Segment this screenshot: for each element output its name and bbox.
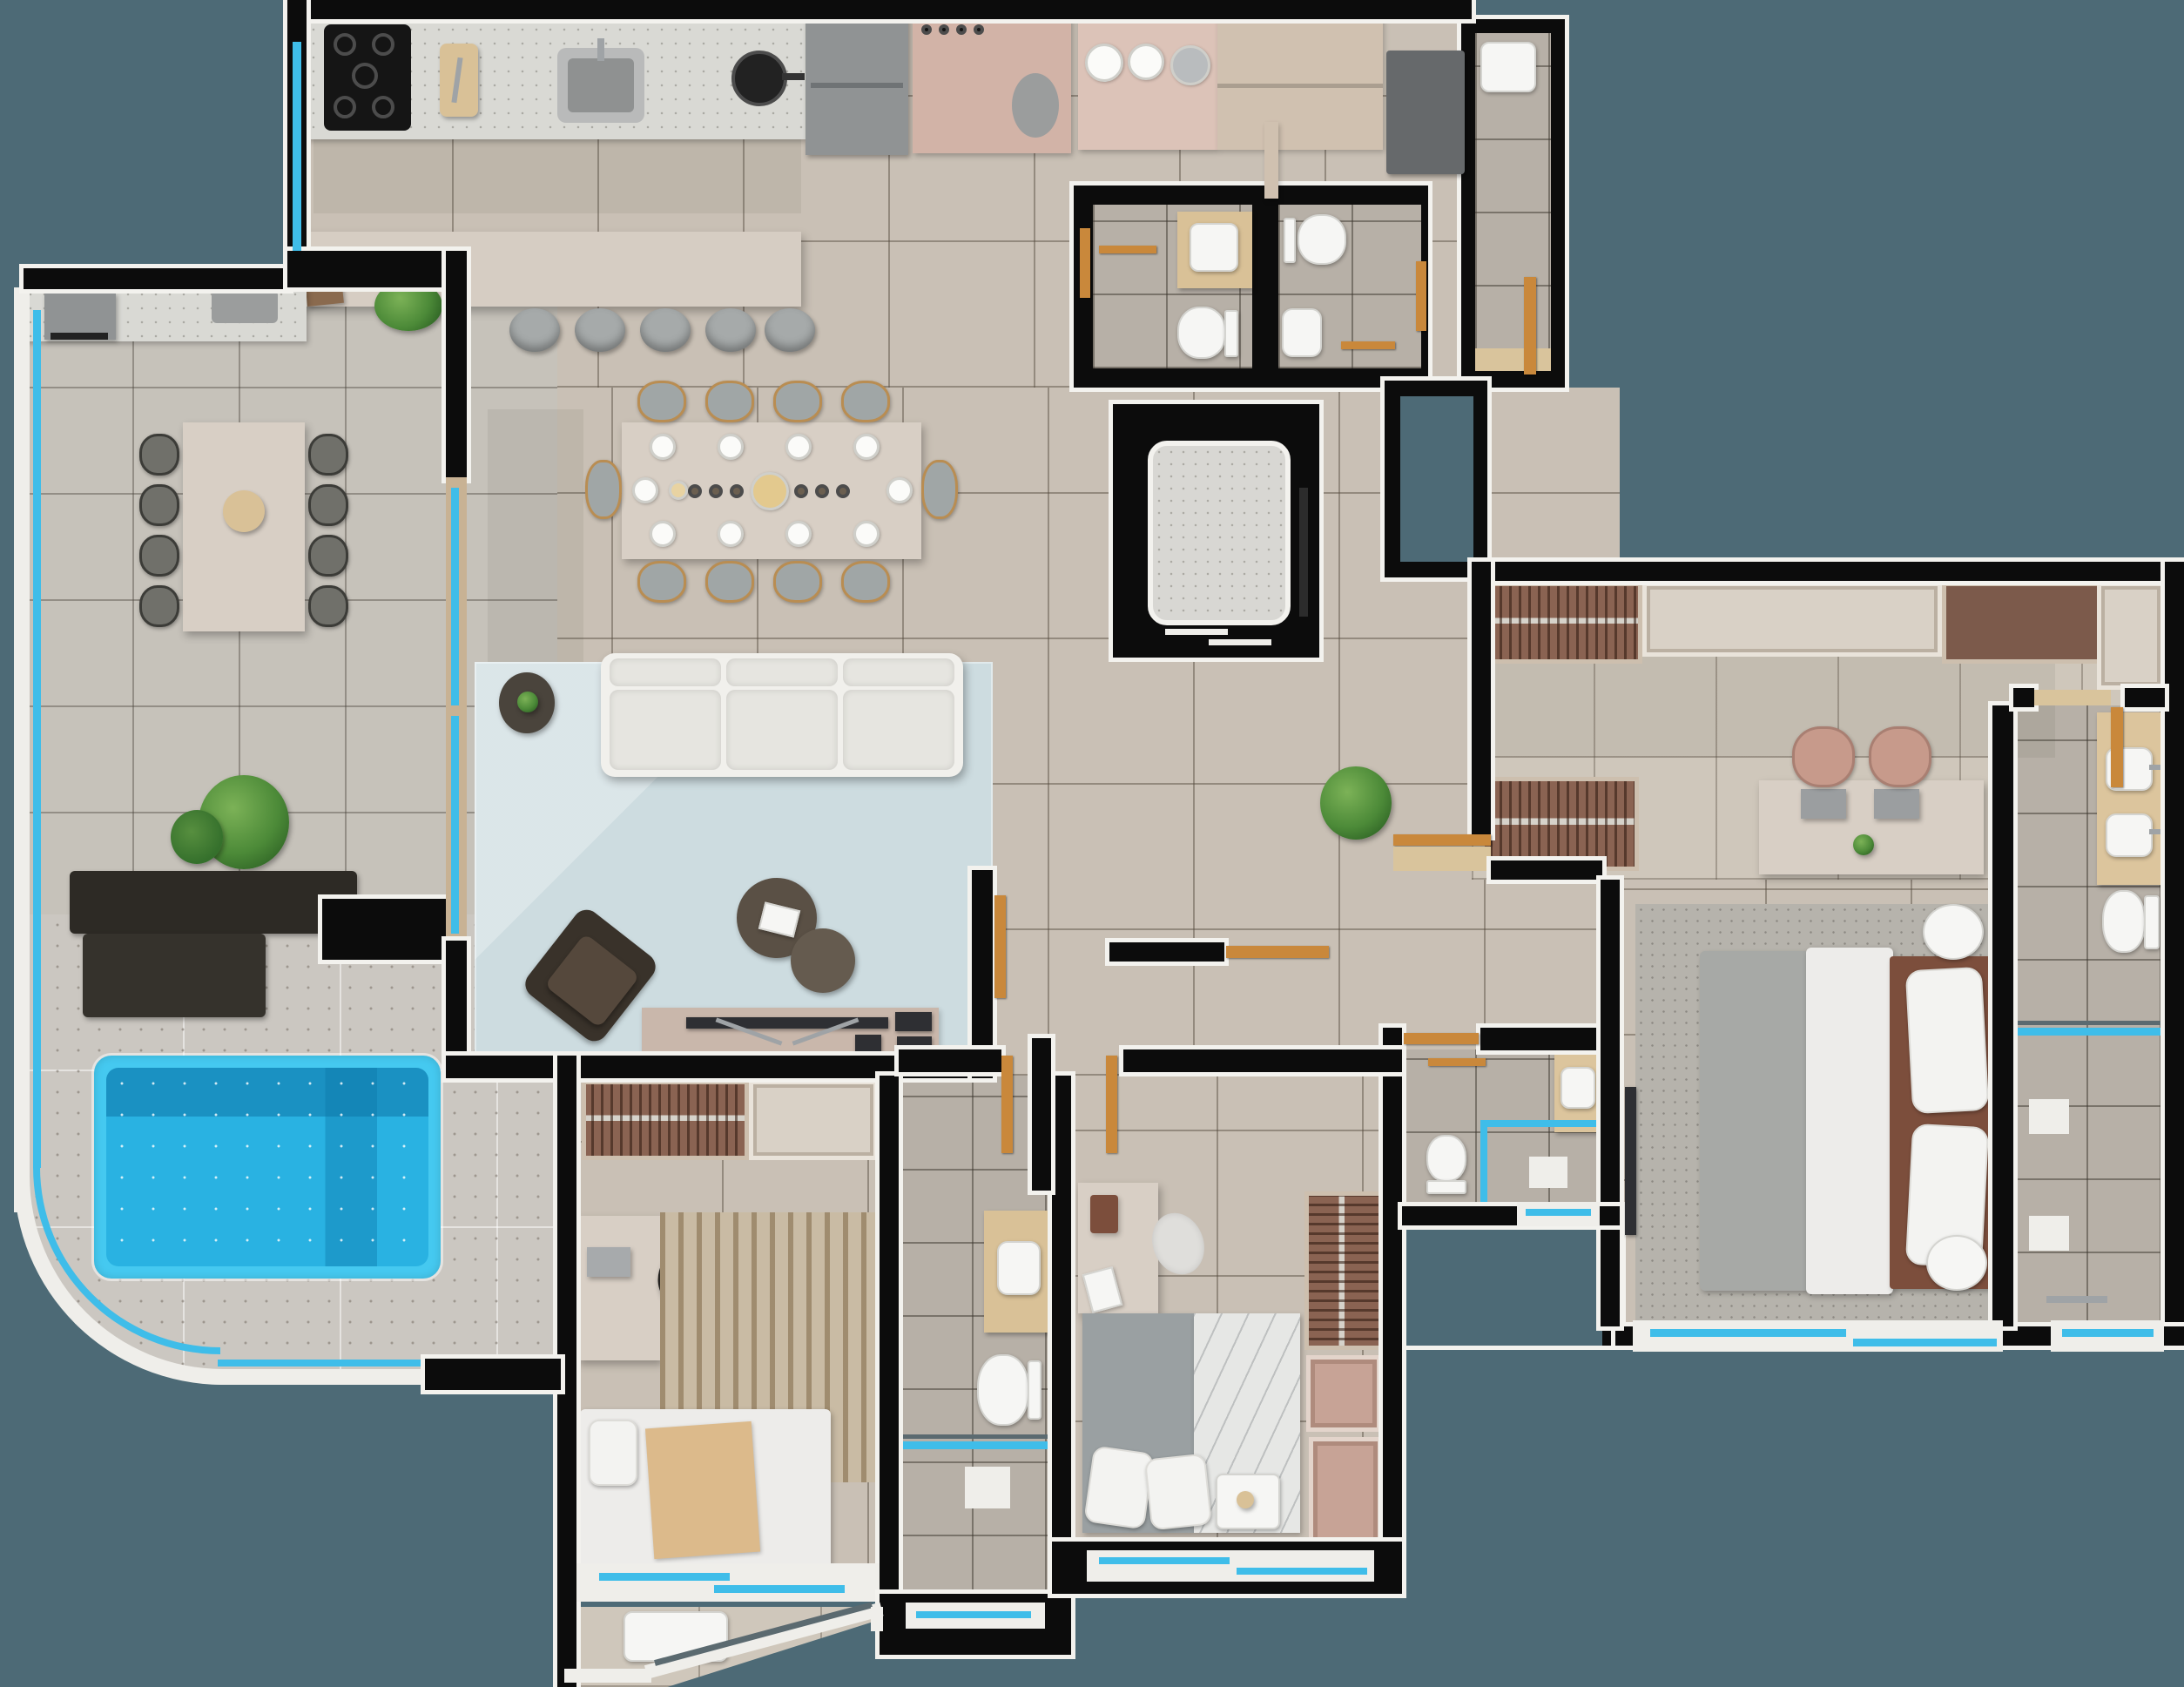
speaker-1 — [895, 1012, 932, 1031]
dressing-cabinet — [1642, 582, 1942, 657]
laundry-threshold — [1475, 348, 1551, 371]
rail-left — [14, 287, 30, 1212]
plate-b1 — [650, 521, 676, 547]
dressing-closet-lower — [1480, 777, 1639, 871]
oval-sink — [1012, 73, 1059, 138]
powder1-toilet-bowl — [1177, 307, 1226, 359]
terrace-chair-r1 — [308, 434, 348, 476]
sofa-back-3 — [843, 658, 954, 686]
burner-5 — [352, 63, 378, 89]
mbath-toilet-tank — [2144, 895, 2160, 949]
glass-corner — [33, 1158, 220, 1354]
shelves2-b — [1309, 1437, 1382, 1547]
terrace-tray — [223, 490, 265, 532]
chair-top-1 — [637, 381, 686, 422]
wall-hall-s3 — [1480, 1028, 1602, 1050]
wall-mbed-bath — [1992, 705, 2013, 1326]
glass-left — [33, 310, 41, 1168]
bath2-shower-rail — [899, 1434, 1052, 1439]
mbath-towel-1 — [2029, 1099, 2069, 1134]
laundry-sink — [1480, 42, 1536, 92]
window-bed2-glass-2 — [1237, 1568, 1367, 1575]
terrace-chair-r3 — [308, 535, 348, 577]
window-kitchen-left — [293, 42, 301, 251]
sofa-seat-3 — [843, 690, 954, 770]
plate-t4 — [853, 434, 880, 460]
bed2-pillow-1 — [1083, 1446, 1155, 1530]
wall-bath2-bed2 — [1052, 1076, 1071, 1576]
stool-3 — [640, 308, 691, 352]
terrace-chair-r2 — [308, 484, 348, 526]
window-suite-glass-2 — [1853, 1339, 1997, 1346]
window-bed1-glass-2 — [714, 1585, 845, 1593]
stool-1 — [509, 308, 560, 352]
terrace-planter-plant — [374, 280, 442, 331]
wall-suite-right — [2165, 562, 2184, 1346]
deco-dot-2 — [709, 484, 723, 498]
bath3-shower-glass-v — [1480, 1125, 1487, 1206]
stool-4 — [705, 308, 756, 352]
shelves2-a — [1306, 1355, 1381, 1432]
bath2-sink — [997, 1241, 1041, 1295]
balcony-rail-left — [564, 1669, 651, 1683]
plate-b2 — [718, 521, 744, 547]
wardrobe1-hanging — [582, 1080, 749, 1160]
shade-kitchen — [313, 139, 801, 213]
bath3-towel-bar — [1428, 1058, 1486, 1066]
window-mbath-glass — [2062, 1329, 2154, 1337]
door-powder2 — [1416, 261, 1426, 331]
burner-1 — [334, 33, 356, 56]
wok-handle — [782, 73, 805, 80]
wardrobe1-shelf — [749, 1080, 878, 1160]
door-living-east — [994, 895, 1006, 998]
knob-1 — [921, 24, 932, 35]
thresh-suite — [1393, 847, 1491, 871]
bath3-towel — [1529, 1157, 1567, 1188]
sofa-seat-2 — [726, 690, 838, 770]
window-bed2-band — [1087, 1550, 1374, 1582]
window-suite-glass-1 — [1650, 1329, 1846, 1337]
bath3-sink — [1560, 1067, 1595, 1109]
rail-bottom — [222, 1369, 431, 1385]
terrace-chair-r4 — [308, 585, 348, 627]
chair-end-l — [585, 460, 622, 519]
mbath-sink-2 — [2106, 813, 2153, 857]
oven-divider — [811, 83, 903, 88]
bath3-toilet-tank — [1426, 1180, 1466, 1194]
wall-mbath-top-a — [2013, 688, 2034, 707]
bowl-1 — [1085, 44, 1123, 82]
bath3-shower-glass-h — [1480, 1120, 1602, 1127]
side-table-plant — [517, 692, 538, 712]
thresh-mbath — [2034, 690, 2111, 705]
bed-pillow-1 — [1905, 967, 1990, 1114]
window-bed1-glass-1 — [599, 1573, 730, 1581]
powder1-sink — [1190, 223, 1238, 272]
bed1-throw — [645, 1421, 760, 1559]
window-bath2-glass — [916, 1611, 1031, 1618]
chair-top-2 — [705, 381, 754, 422]
plate-b3 — [785, 521, 812, 547]
deco-gold-s — [669, 481, 688, 500]
bed2-pillow-2 — [1144, 1454, 1212, 1531]
window-bath3-glass — [1526, 1209, 1591, 1216]
window-bed1-band — [576, 1563, 880, 1602]
sofa-seat-1 — [610, 690, 721, 770]
wok-pan — [731, 51, 787, 106]
pouf-2 — [1926, 1235, 1987, 1291]
mbath-vanity — [2097, 712, 2165, 885]
sofa-back-2 — [726, 658, 838, 686]
balcony-rail-right — [871, 1607, 883, 1631]
deco-dot-3 — [730, 484, 744, 498]
kitchen-sink-basin — [568, 58, 634, 112]
glass-bottom — [218, 1360, 427, 1366]
burner-2 — [372, 33, 394, 56]
office-chair-2 — [1869, 726, 1931, 787]
knob-4 — [974, 24, 984, 35]
mbath-towel-2 — [2029, 1216, 2069, 1251]
stool-2 — [575, 308, 625, 352]
bedroom-tv — [1625, 1087, 1636, 1235]
bathroom2-floor — [899, 1076, 1052, 1609]
wardrobe2 — [1304, 1191, 1383, 1350]
sofa-back-1 — [610, 658, 721, 686]
bed-blanket-gray — [1700, 951, 1810, 1291]
mbath-drain — [2046, 1296, 2107, 1303]
chair-end-r — [921, 460, 958, 519]
deco-dot-5 — [815, 484, 829, 498]
knob-3 — [956, 24, 967, 35]
desk1 — [576, 1216, 660, 1360]
wall-mbath-top-b — [2125, 688, 2165, 707]
powder2-toilet-tank — [1284, 218, 1296, 263]
desk2-book — [1090, 1195, 1118, 1233]
wall-l-horiz — [287, 251, 448, 287]
door-laundry — [1524, 277, 1536, 375]
tv-console — [642, 1008, 939, 1058]
door-mbath — [2111, 707, 2123, 787]
centerpiece-gold — [751, 472, 789, 510]
chaise-lounge — [70, 871, 357, 934]
fire-table — [322, 899, 453, 960]
laptop-1 — [1801, 789, 1846, 819]
fridge — [1386, 51, 1465, 174]
plate-b4 — [853, 521, 880, 547]
terrace-plant-2 — [171, 810, 223, 864]
door-bed2 — [1106, 1056, 1117, 1153]
slider-glass-2 — [451, 716, 459, 934]
office-desk — [1759, 780, 1984, 874]
dressing-closet-left — [1480, 582, 1642, 664]
chair-bot-1 — [637, 561, 686, 603]
elevator-cab — [1148, 441, 1291, 625]
wall-hall-s2 — [1123, 1049, 1402, 1072]
door-powder1 — [1080, 228, 1090, 298]
mbath-faucet-2 — [2149, 829, 2167, 834]
wall-bed1-bath2 — [880, 1076, 899, 1624]
terrace-sink — [212, 290, 278, 323]
bath3-toilet-bowl — [1426, 1135, 1466, 1182]
mbath-shower-rail — [2013, 1021, 2165, 1025]
wall-living-east — [972, 870, 993, 1078]
knob-2 — [939, 24, 949, 35]
hall-plant — [1320, 766, 1392, 840]
bed1-pillow — [589, 1420, 637, 1486]
powder1-toilet-tank — [1224, 310, 1238, 357]
wall-hall-chunk — [1109, 942, 1224, 962]
wall-below-slider — [446, 941, 467, 1057]
bath2-toilet-bowl — [977, 1354, 1029, 1426]
laptop1 — [587, 1247, 630, 1277]
bath2-shower-glass — [899, 1441, 1052, 1449]
bed-duvet-white — [1806, 948, 1893, 1294]
bed2-lamp — [1237, 1491, 1254, 1508]
chair-bot-2 — [705, 561, 754, 603]
wall-bed2-right — [1383, 1028, 1402, 1576]
desk-plant — [1853, 834, 1874, 855]
plate-el — [632, 477, 658, 503]
coffee-table-2 — [791, 928, 855, 993]
chair-top-4 — [841, 381, 890, 422]
deco-dot-4 — [794, 484, 808, 498]
door-suite — [1393, 834, 1491, 846]
wall-terrace-bed1 — [425, 1359, 561, 1390]
void2 — [1402, 1225, 1602, 1346]
deco-dot-6 — [836, 484, 850, 498]
mbath-toilet-bowl — [2102, 890, 2146, 953]
laptop-2 — [1874, 789, 1919, 819]
wall-mbed-left — [1601, 880, 1620, 1326]
shaft-void — [1400, 396, 1473, 562]
chair-bot-3 — [773, 561, 822, 603]
terrace-chair-l1 — [139, 434, 179, 476]
wall-hall-s1 — [899, 1049, 1001, 1072]
burner-3 — [334, 96, 356, 118]
office-chair-1 — [1792, 726, 1855, 787]
apartment-floor-plan — [0, 0, 2184, 1687]
wall-top — [287, 0, 1472, 19]
bath2-toilet-tank — [1028, 1360, 1041, 1420]
window-bed2-glass-1 — [1099, 1557, 1230, 1564]
wall-dress-hall — [1491, 860, 1602, 880]
bowl-3 — [1170, 45, 1210, 85]
terrace-chair-l3 — [139, 535, 179, 577]
bowl-2 — [1128, 44, 1164, 80]
door-bath3 — [1404, 1033, 1479, 1044]
service-divider — [1264, 122, 1278, 199]
door-hall — [1226, 946, 1329, 958]
elevator-door-track-2 — [1209, 639, 1271, 645]
stool-5 — [765, 308, 815, 352]
plate-t3 — [785, 434, 812, 460]
plate-t1 — [650, 434, 676, 460]
mbath-shower-glass — [2013, 1028, 2165, 1036]
chair-bot-4 — [841, 561, 890, 603]
elevator-door-track-1 — [1165, 629, 1228, 635]
terrace-chair-l4 — [139, 585, 179, 627]
wall-terrace-top — [24, 268, 289, 289]
deco-dot-1 — [688, 484, 702, 498]
door-bath2 — [1001, 1056, 1013, 1153]
burner-4 — [372, 96, 394, 118]
powder2-towel-bar — [1341, 341, 1395, 349]
plate-t2 — [718, 434, 744, 460]
elevator-rail — [1299, 488, 1308, 617]
bbq-knobs — [51, 333, 108, 340]
powder2-sink — [1282, 308, 1322, 357]
chair-top-3 — [773, 381, 822, 422]
chaise-lounge-seat — [83, 934, 266, 1017]
wall-suite-left — [1472, 562, 1491, 836]
wall-hall-stub — [1032, 1038, 1051, 1191]
mbath-faucet-1 — [2149, 765, 2167, 770]
dressing-corner-shelf — [2097, 582, 2165, 690]
speaker-2 — [855, 1035, 881, 1056]
terrace-chair-l2 — [139, 484, 179, 526]
slider-glass-1 — [451, 488, 459, 705]
pantry-hall — [1217, 16, 1383, 150]
pouf-1 — [1923, 904, 1984, 960]
powder1-towel-bar — [1099, 246, 1156, 253]
plate-er — [886, 477, 913, 503]
wall-l-vert — [446, 251, 467, 479]
wall-suite-top — [1472, 562, 2184, 581]
pantry-step — [1217, 84, 1383, 88]
powder2-toilet-bowl — [1298, 214, 1346, 265]
kitchen-faucet — [597, 38, 604, 61]
bath2-shower-head — [965, 1467, 1010, 1508]
